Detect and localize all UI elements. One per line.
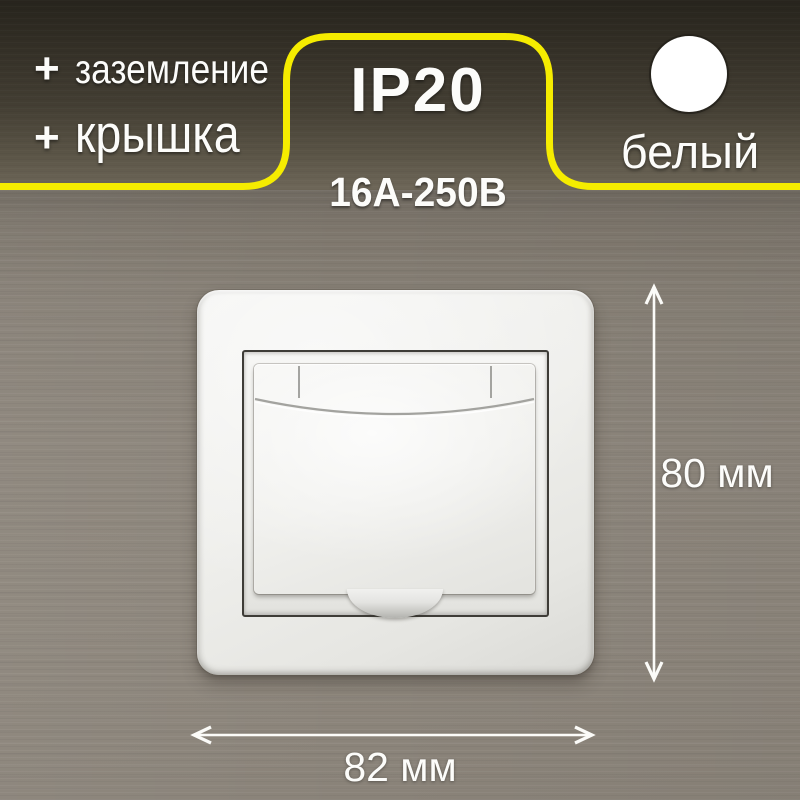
socket-recess bbox=[242, 350, 549, 617]
rating-label: 16А-250В bbox=[290, 169, 547, 216]
feature-label: крышка bbox=[75, 104, 240, 165]
color-swatch bbox=[651, 36, 727, 112]
color-swatch-label: белый bbox=[605, 124, 775, 179]
feature-cover: + крышка bbox=[34, 104, 262, 165]
socket-plate bbox=[197, 290, 594, 675]
feature-label: заземление bbox=[75, 46, 269, 93]
plus-icon: + bbox=[34, 44, 60, 94]
feature-grounding: + заземление bbox=[34, 44, 300, 94]
lid-groove bbox=[254, 364, 535, 444]
product-card: + заземление + крышка IP20 16А-250В белы… bbox=[0, 0, 800, 800]
spec-box: IP20 16А-250В bbox=[283, 33, 553, 190]
width-dimension-label: 82 мм bbox=[300, 744, 500, 791]
protection-class-label: IP20 bbox=[283, 55, 553, 126]
plus-icon: + bbox=[34, 113, 60, 163]
socket-lid bbox=[254, 364, 535, 594]
height-dimension-label: 80 мм bbox=[652, 450, 782, 497]
